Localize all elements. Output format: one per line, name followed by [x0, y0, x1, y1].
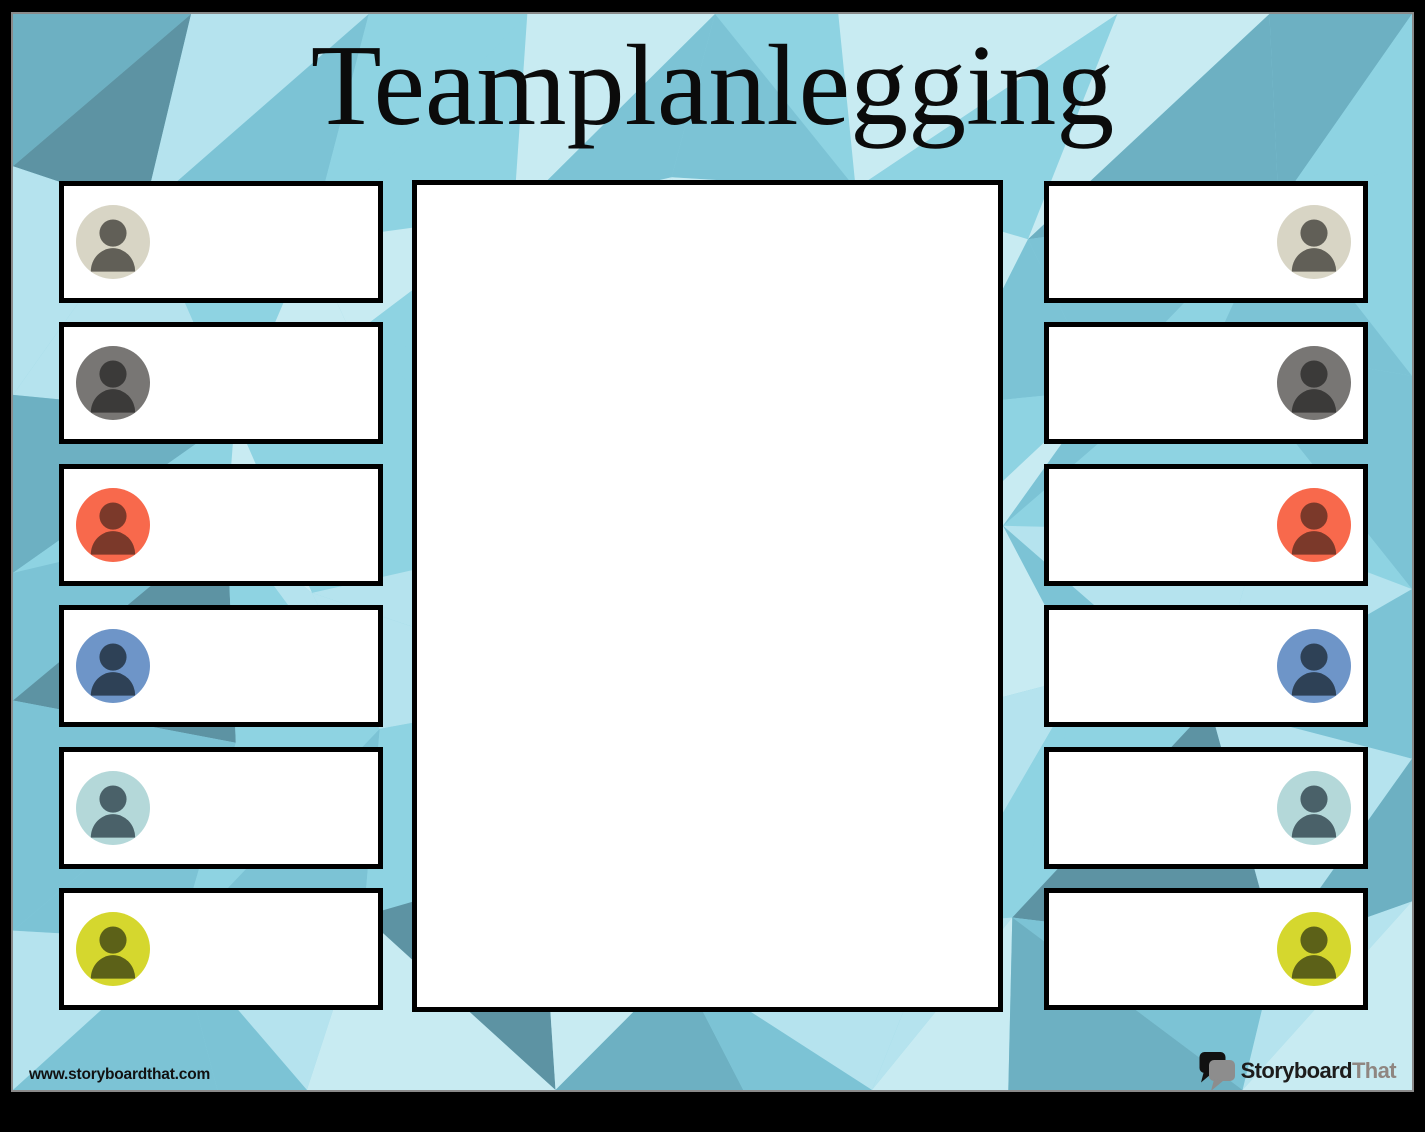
avatar — [1277, 629, 1351, 703]
team-member-card[interactable] — [59, 747, 383, 869]
avatar — [1277, 771, 1351, 845]
avatar — [1277, 488, 1351, 562]
center-planning-panel[interactable] — [412, 180, 1003, 1012]
team-member-card[interactable] — [59, 464, 383, 586]
website-url: www.storyboardthat.com — [29, 1066, 210, 1084]
poster-title: Teamplanlegging — [13, 28, 1412, 144]
avatar — [76, 912, 150, 986]
avatar — [1277, 205, 1351, 279]
person-icon — [76, 488, 150, 562]
team-member-card[interactable] — [1044, 322, 1368, 444]
avatar — [76, 346, 150, 420]
person-icon — [76, 205, 150, 279]
team-member-card[interactable] — [1044, 888, 1368, 1010]
team-member-card[interactable] — [1044, 464, 1368, 586]
avatar — [76, 771, 150, 845]
team-member-card[interactable] — [59, 605, 383, 727]
team-member-card[interactable] — [59, 322, 383, 444]
avatar — [1277, 912, 1351, 986]
logo-text: StoryboardThat — [1241, 1058, 1396, 1084]
logo-text-primary: Storyboard — [1241, 1058, 1352, 1083]
person-icon — [76, 912, 150, 986]
team-member-card[interactable] — [1044, 747, 1368, 869]
right-member-column — [1044, 181, 1368, 1010]
person-icon — [76, 771, 150, 845]
team-member-card[interactable] — [59, 888, 383, 1010]
left-member-column — [59, 181, 383, 1010]
person-icon — [76, 629, 150, 703]
team-member-card[interactable] — [1044, 181, 1368, 303]
poster: Teamplanlegging www.storyboardthat.com S… — [11, 12, 1414, 1092]
person-icon — [1277, 488, 1351, 562]
avatar — [76, 205, 150, 279]
logo-text-secondary: That — [1352, 1058, 1396, 1083]
person-icon — [76, 346, 150, 420]
avatar — [76, 629, 150, 703]
storyboardthat-logo: StoryboardThat — [1198, 1050, 1396, 1092]
team-member-card[interactable] — [59, 181, 383, 303]
poster-frame: Teamplanlegging www.storyboardthat.com S… — [0, 0, 1425, 1132]
person-icon — [1277, 629, 1351, 703]
avatar — [76, 488, 150, 562]
person-icon — [1277, 346, 1351, 420]
person-icon — [1277, 771, 1351, 845]
speech-bubbles-icon — [1198, 1050, 1236, 1092]
person-icon — [1277, 205, 1351, 279]
person-icon — [1277, 912, 1351, 986]
avatar — [1277, 346, 1351, 420]
team-member-card[interactable] — [1044, 605, 1368, 727]
